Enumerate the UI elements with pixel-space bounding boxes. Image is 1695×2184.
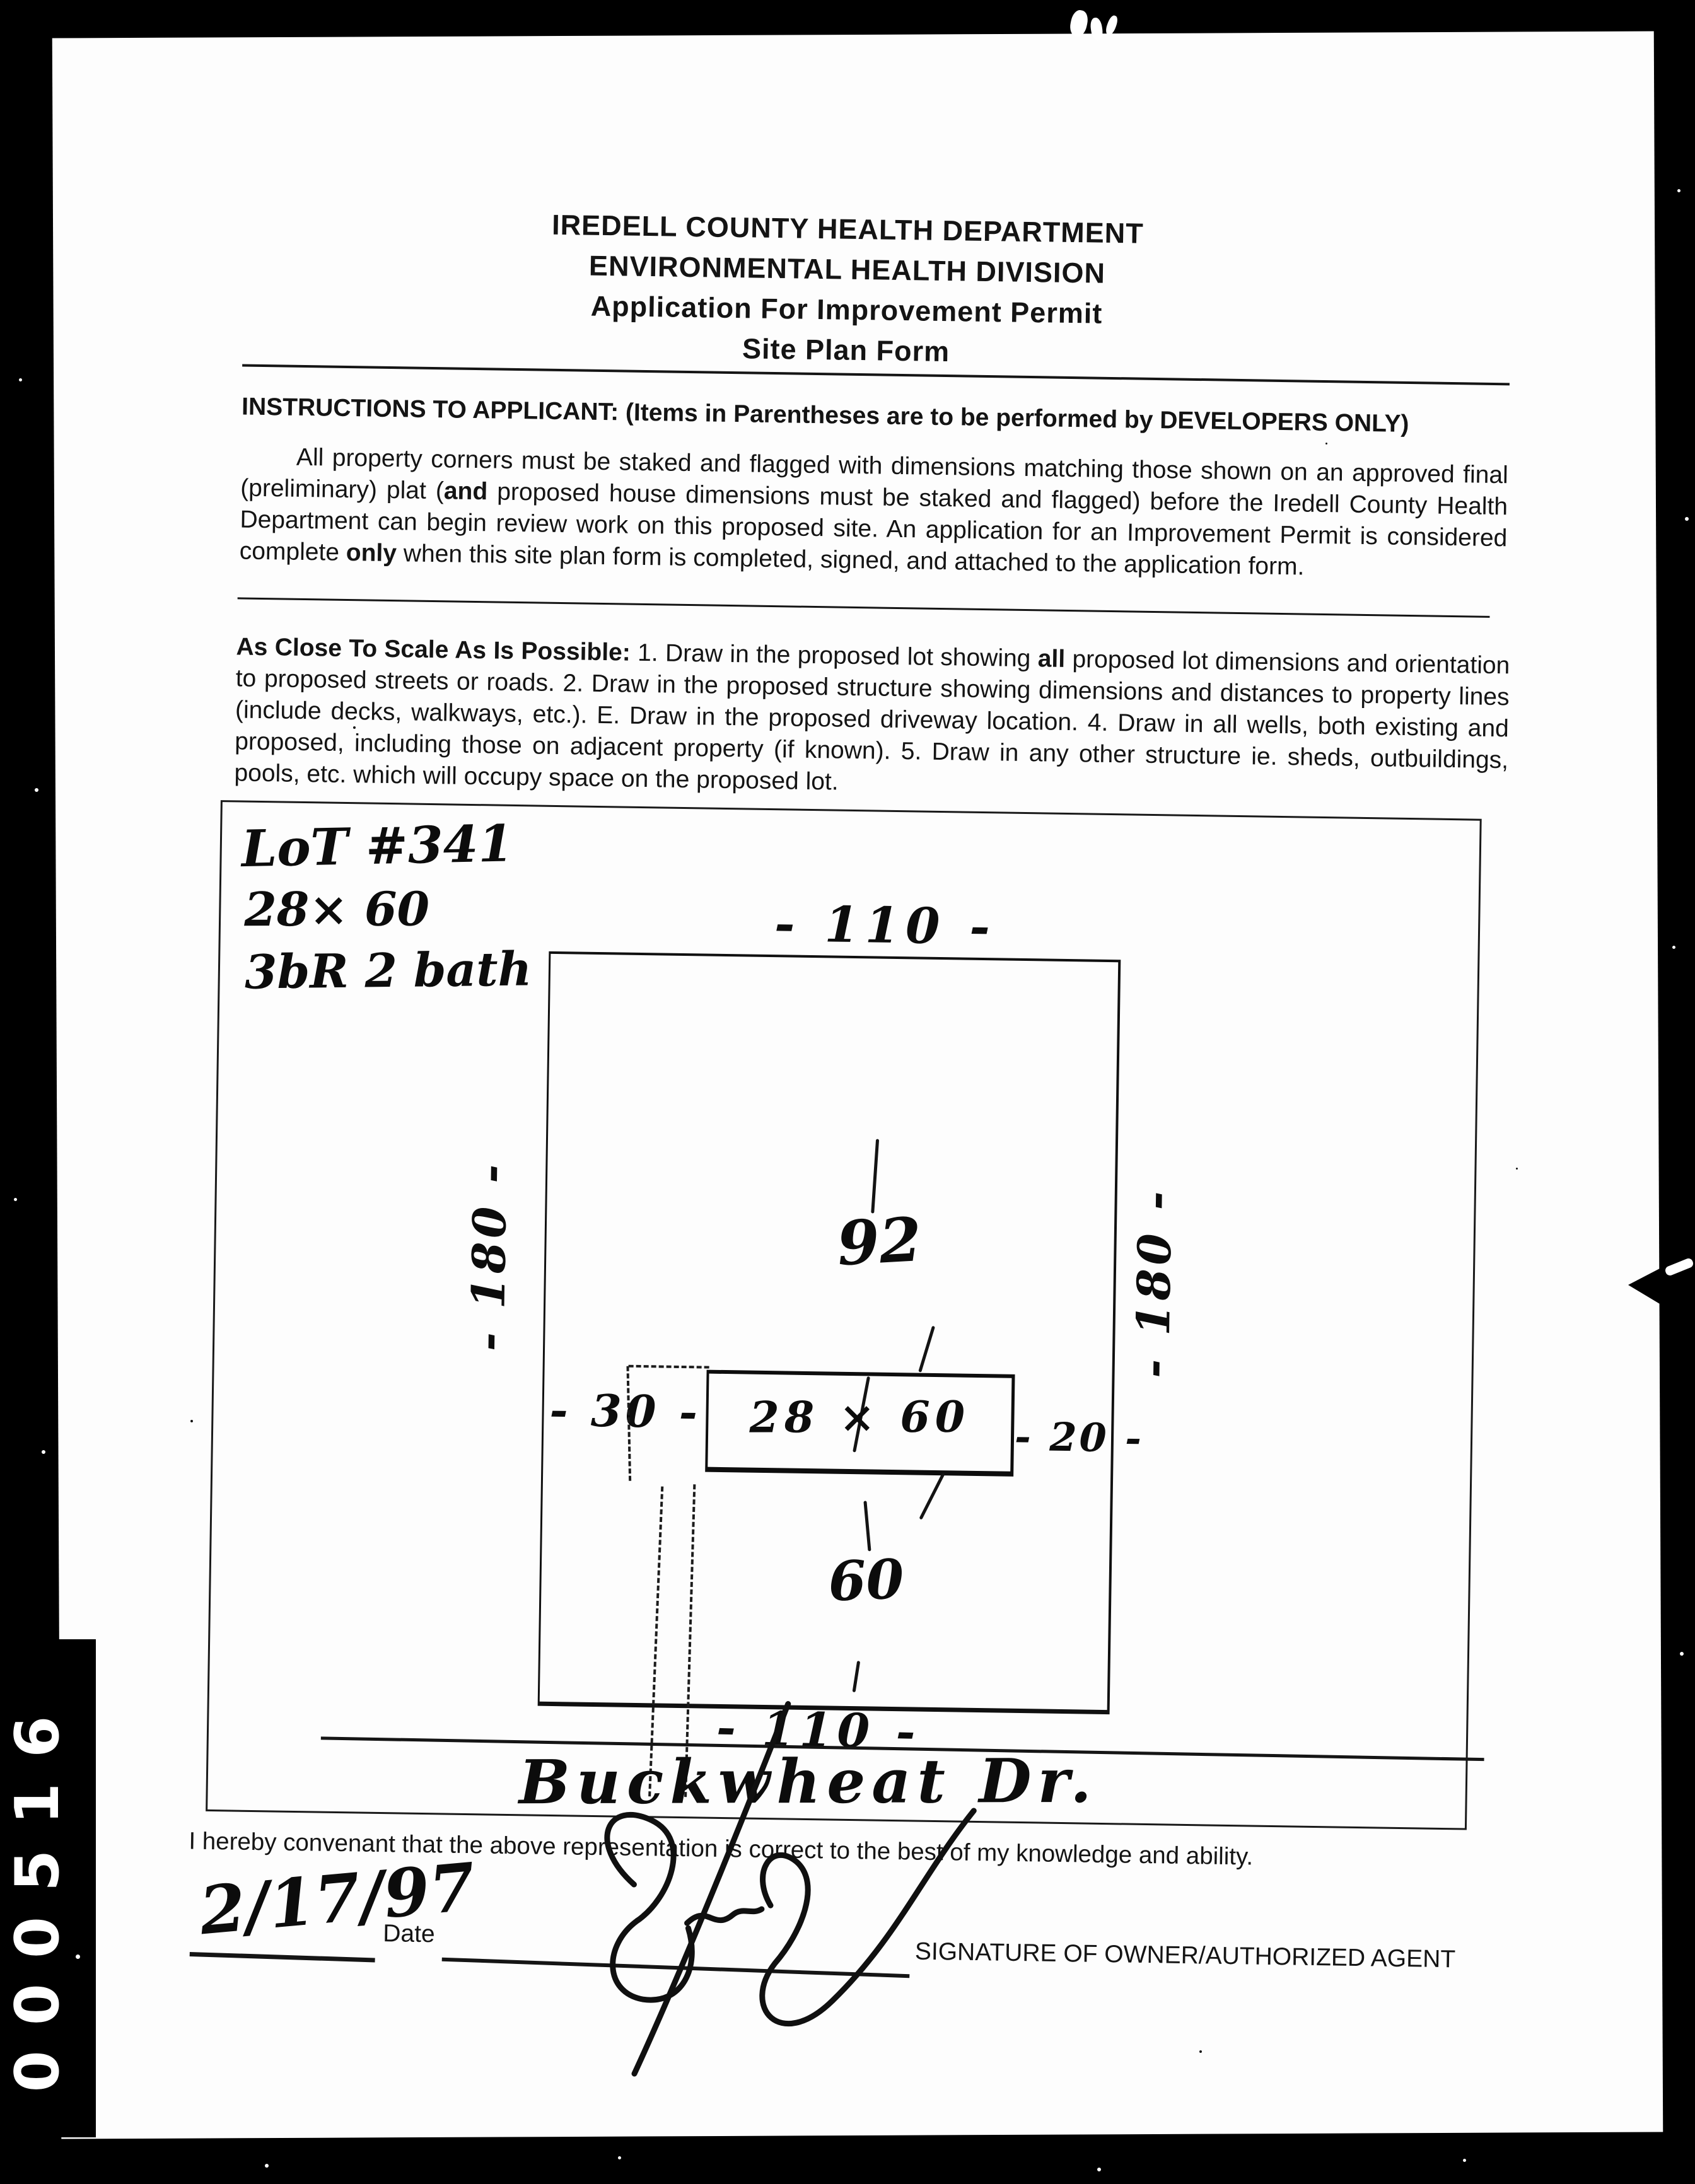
scan-speck <box>1680 1652 1684 1656</box>
scan-speck <box>1199 2050 1202 2053</box>
scan-speck <box>19 378 22 381</box>
scan-speck <box>190 1420 193 1422</box>
dim-lot-width-top: - 110 - <box>774 895 996 956</box>
scan-speck <box>76 1955 80 1959</box>
scan-speck <box>353 726 356 729</box>
scale-instructions-paragraph: As Close To Scale As Is Possible: 1. Dra… <box>234 631 1510 808</box>
dim-rear-distance: 60 <box>827 1547 905 1613</box>
dim-side-distance-left: - 30 - <box>549 1384 701 1439</box>
scan-speck <box>618 2156 621 2159</box>
house-outline: 28 × 60 <box>705 1370 1015 1477</box>
signature-mark <box>414 1692 987 2091</box>
date-underline <box>190 1952 375 1962</box>
page-content: IREDELL COUNTY HEALTH DEPARTMENT ENVIRON… <box>0 0 1695 2184</box>
note-bedrooms-baths: 3bR 2 bath <box>244 942 532 999</box>
scan-speck <box>1463 2159 1466 2162</box>
scan-notch-artifact <box>1628 1269 1660 1304</box>
scanned-document: IREDELL COUNTY HEALTH DEPARTMENT ENVIRON… <box>0 0 1695 2184</box>
signature-label: SIGNATURE OF OWNER/AUTHORIZED AGENT <box>915 1938 1456 1974</box>
scan-speck <box>35 788 38 792</box>
margin-stamp-number: 000516 <box>3 1652 73 2131</box>
scan-speck <box>265 2164 269 2168</box>
dim-lot-depth-left: - 180 - <box>461 1187 517 1351</box>
note-house-size: 28× 60 <box>244 882 429 937</box>
scan-speck <box>14 1198 17 1201</box>
scan-speck <box>1097 2168 1101 2171</box>
scan-speck <box>42 1450 45 1454</box>
scan-speck <box>1677 189 1680 192</box>
house-size-label: 28 × 60 <box>750 1392 970 1443</box>
scan-speck <box>1516 1168 1518 1170</box>
scan-speck <box>1672 946 1675 949</box>
dim-lot-depth-right: - 180 - <box>1126 1214 1182 1378</box>
divider-rule-middle <box>238 597 1490 617</box>
scan-speck <box>1685 517 1689 521</box>
instructions-paragraph: All property corners must be staked and … <box>239 441 1508 586</box>
page-title: IREDELL COUNTY HEALTH DEPARTMENT ENVIRON… <box>373 202 1321 378</box>
instructions-heading: INSTRUCTIONS TO APPLICANT: (Items in Par… <box>242 393 1409 438</box>
scan-speck <box>1325 443 1327 444</box>
dim-front-distance: 92 <box>836 1204 924 1279</box>
dim-side-distance-right: - 20 - <box>1015 1414 1145 1461</box>
note-lot-number: LoT #341 <box>241 813 514 878</box>
